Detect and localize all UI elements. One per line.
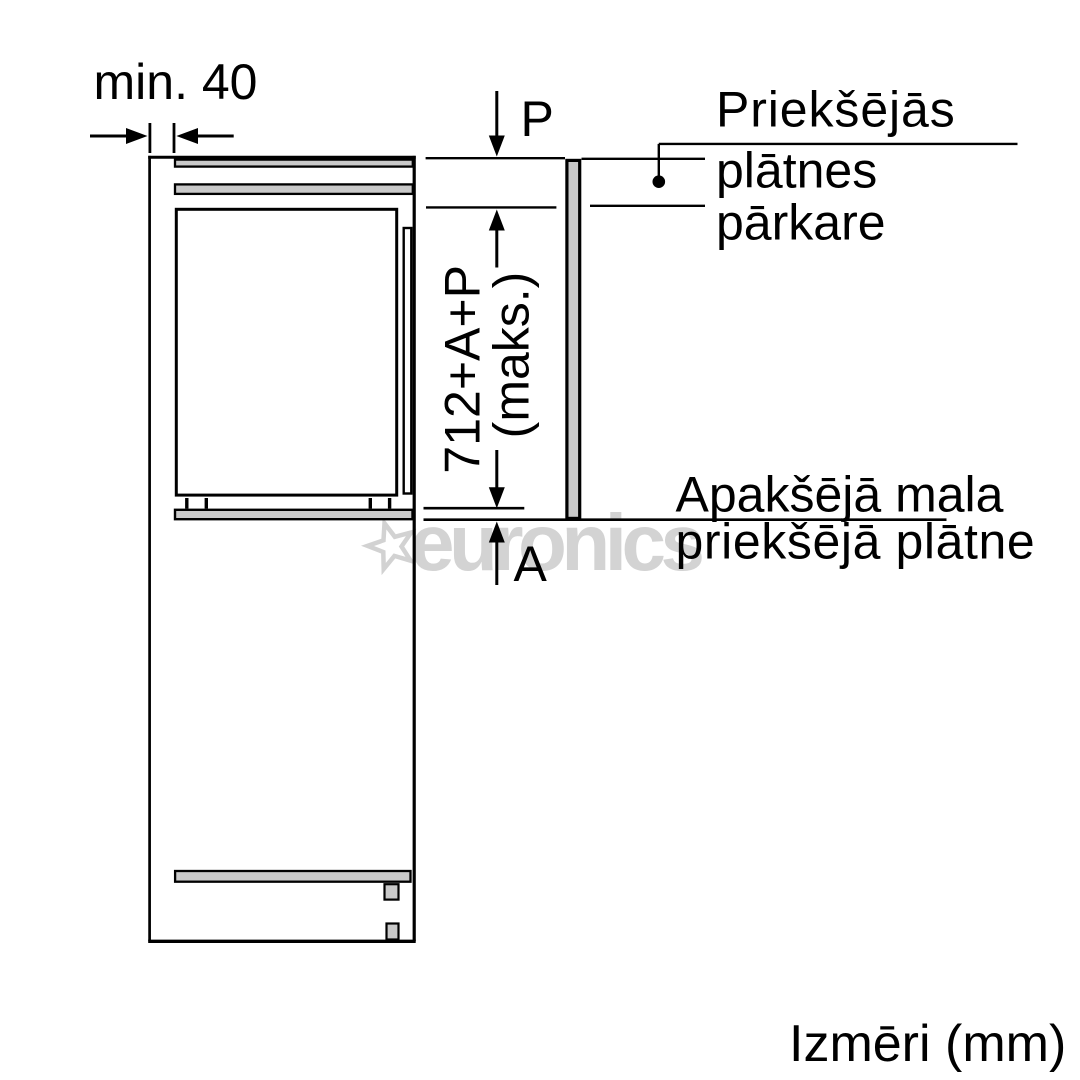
svg-text:A: A (514, 536, 548, 592)
svg-text:(maks.): (maks.) (484, 272, 540, 439)
svg-text:712+A+P: 712+A+P (435, 265, 491, 474)
svg-text:priekšējā plātne: priekšējā plātne (676, 514, 1036, 570)
svg-text:plātnes: plātnes (716, 143, 877, 199)
svg-text:Priekšējās: Priekšējās (716, 82, 956, 138)
svg-text:min. 40: min. 40 (94, 54, 258, 110)
svg-text:euronics: euronics (410, 498, 702, 587)
svg-text:pārkare: pārkare (716, 195, 886, 251)
svg-text:Izmēri (mm): Izmēri (mm) (789, 1015, 1066, 1073)
svg-text:P: P (521, 91, 554, 147)
